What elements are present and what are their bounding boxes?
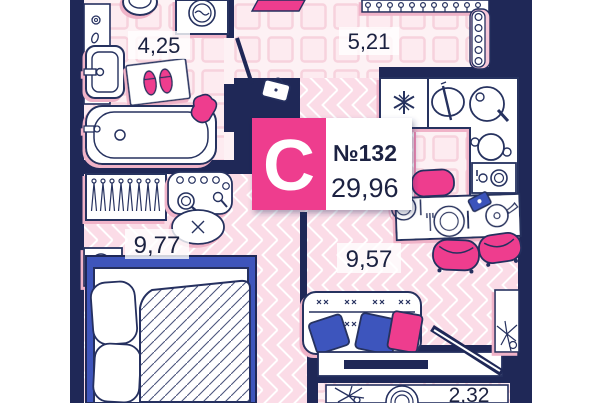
room-area-living: 9,57 (346, 246, 393, 273)
unit-type-letter: С (263, 126, 315, 206)
bathroom-sink-icon (84, 46, 124, 98)
unit-number: №132 (333, 140, 397, 166)
chair-icon (432, 239, 479, 274)
floorplan-svg: 4,25 5,21 9,77 9,57 2,32 С №132 29,96 (0, 0, 605, 403)
duvet (140, 281, 250, 402)
room-area-bathroom: 4,25 (138, 33, 181, 58)
entry-mat-icon (252, 0, 305, 11)
unit-total-area: 29,96 (331, 173, 399, 203)
room-area-hallway: 5,21 (348, 29, 391, 54)
bathroom-door-opening (224, 38, 234, 84)
room-area-balcony: 2,32 (449, 384, 490, 403)
wall-niche (224, 132, 234, 160)
wardrobe-hangers-icon (86, 174, 166, 220)
plant-icon (495, 290, 519, 352)
unit-card: С №132 29,96 (252, 118, 412, 210)
double-bed-icon (86, 256, 256, 403)
closet-hangers-icon (362, 0, 489, 12)
bath-mat-slippers-icon (126, 58, 190, 105)
coat-rack-icon (470, 9, 490, 69)
washing-machine-icon (176, 0, 228, 34)
sofa-icon (303, 292, 423, 356)
room-area-bedroom: 9,77 (134, 232, 181, 259)
vanity-icon (168, 172, 232, 214)
bedroom (84, 172, 256, 403)
floorplan-image: 4,25 5,21 9,77 9,57 2,32 С №132 29,96 (0, 0, 605, 403)
chair-icon (411, 169, 454, 197)
